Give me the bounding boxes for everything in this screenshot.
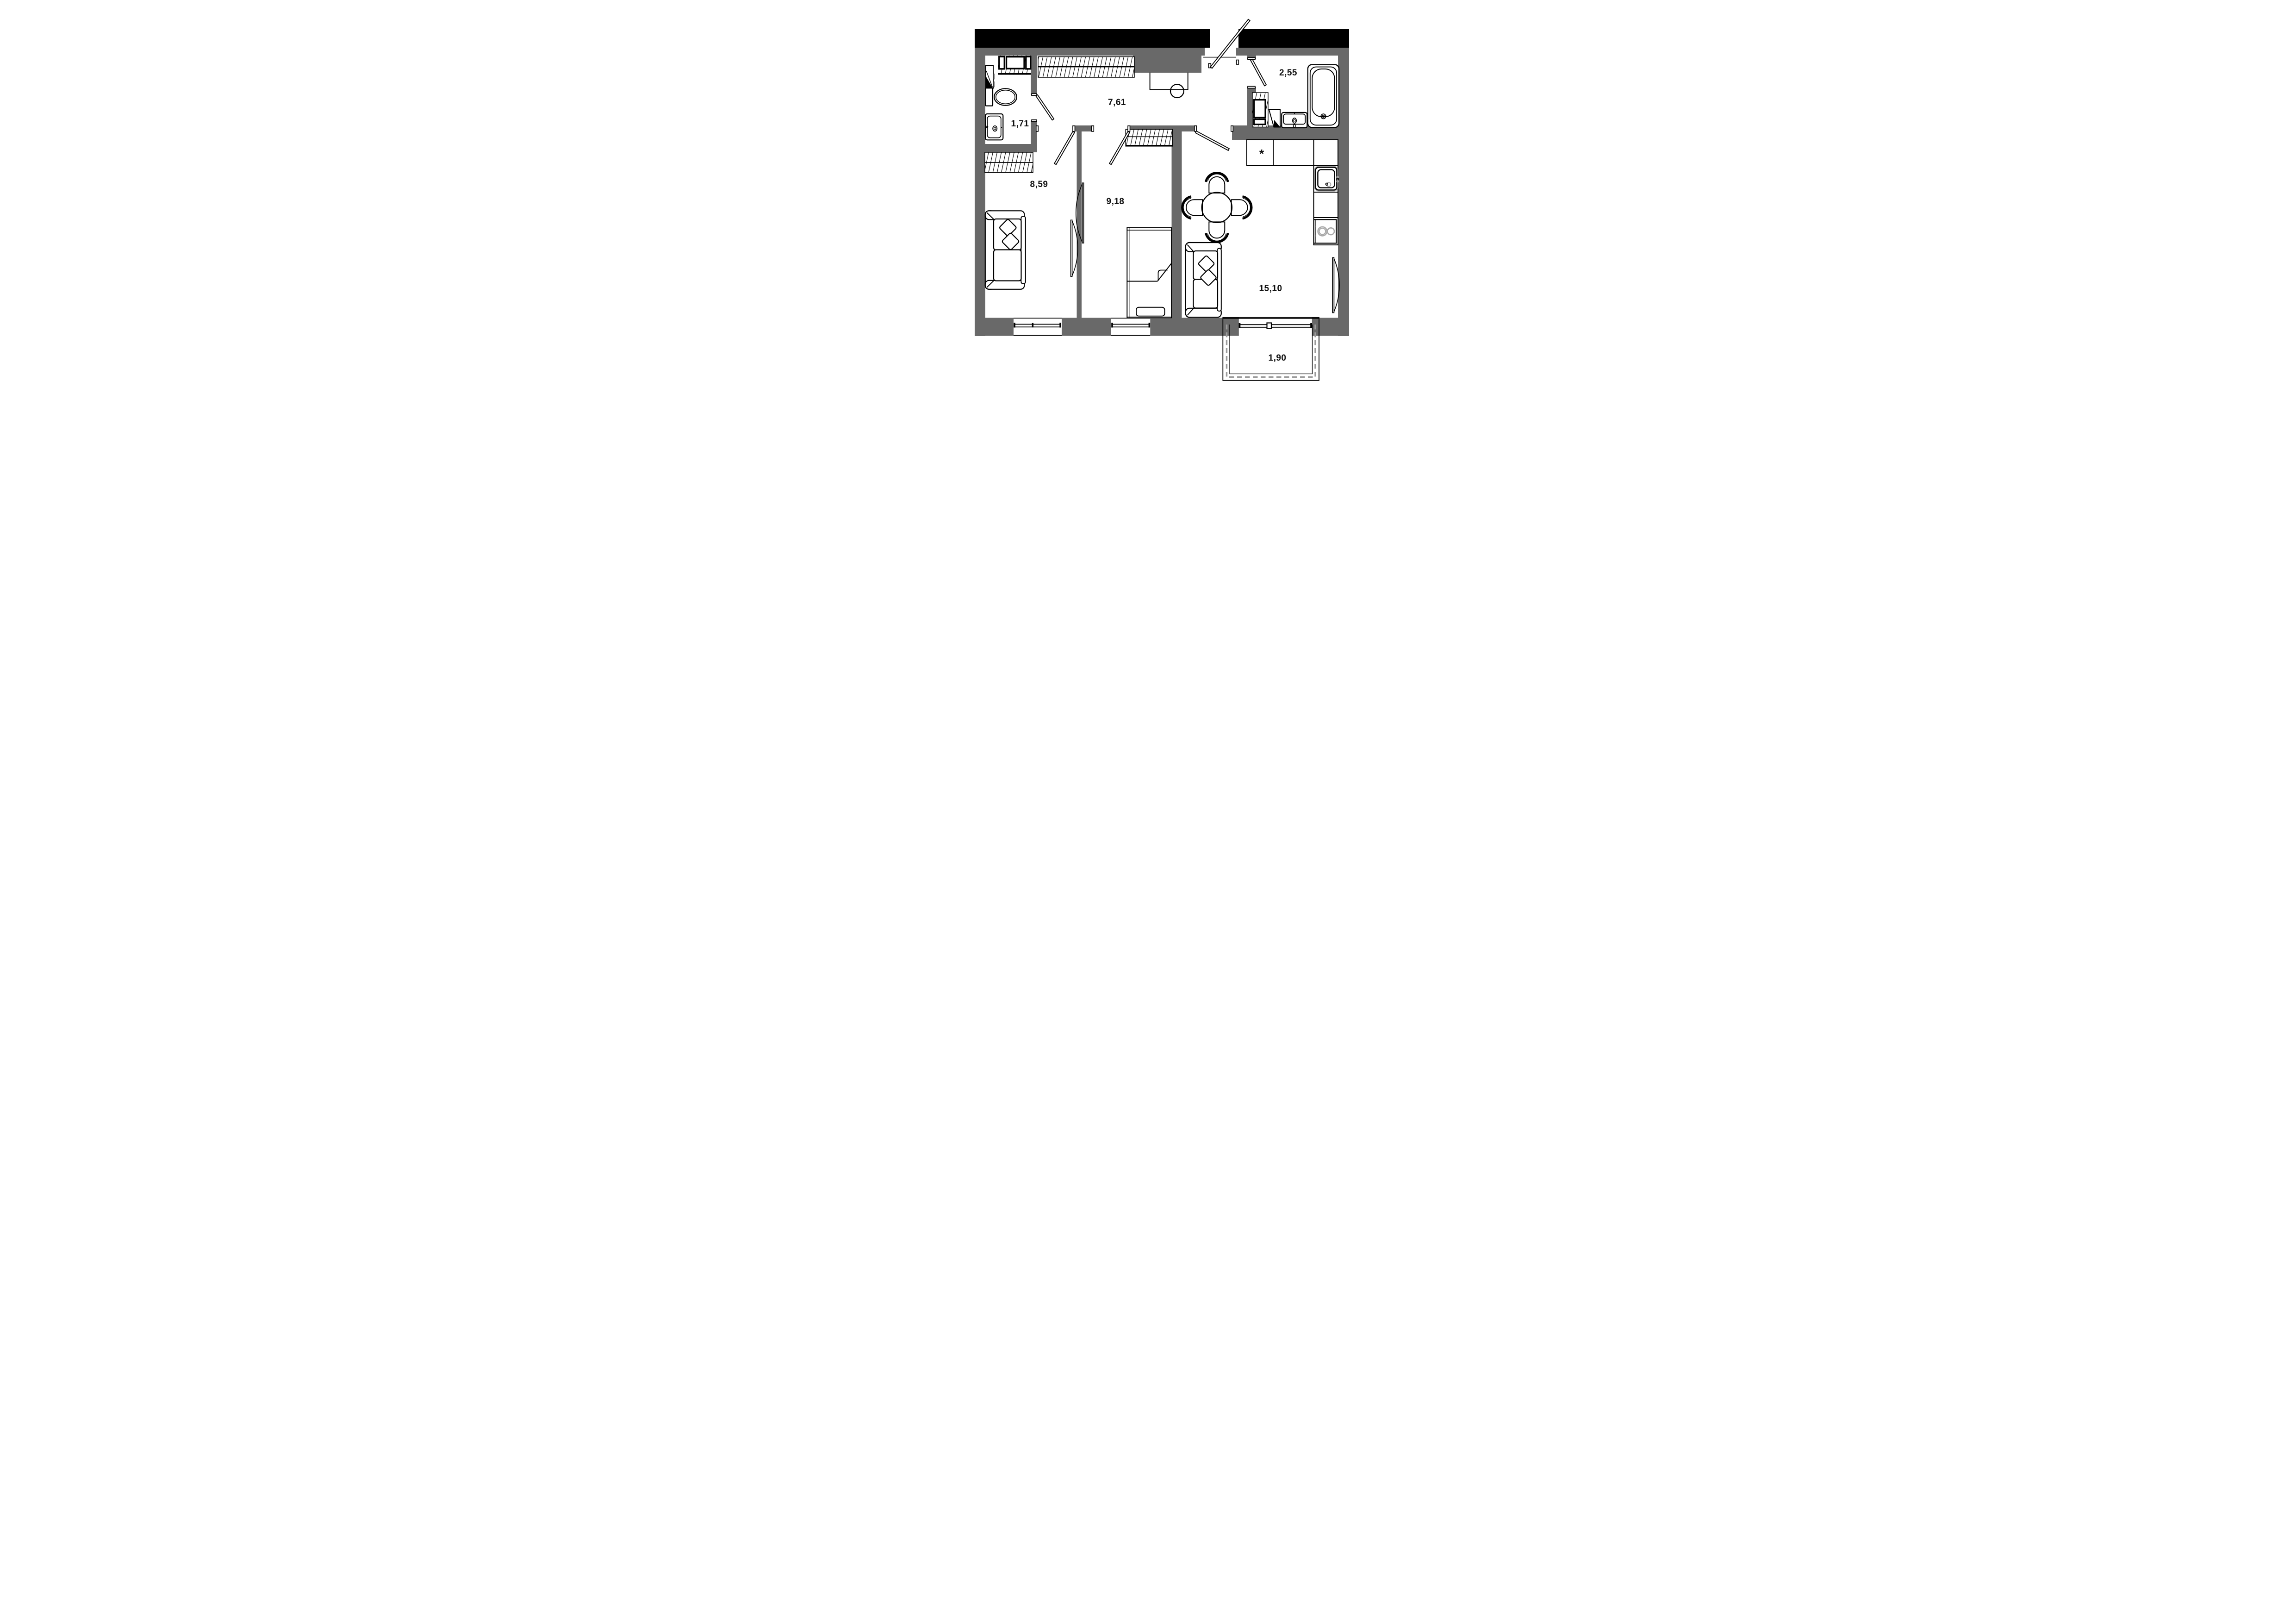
bathroom-door-leaf bbox=[1251, 59, 1266, 86]
floor-plan-page: 1,90 bbox=[861, 0, 1435, 406]
room-kitchen-living: * bbox=[1182, 126, 1339, 318]
room-middle: 9,18 bbox=[1076, 126, 1172, 318]
wc-towel-rail-mark-2 bbox=[993, 81, 994, 87]
wc-door-leaf bbox=[1036, 95, 1054, 120]
outer-black-wall bbox=[975, 29, 1349, 48]
kitchen-sink-icon bbox=[1315, 167, 1339, 191]
room-left-wardrobe bbox=[985, 152, 1033, 173]
bathroom-door bbox=[1248, 58, 1266, 88]
hallway-console-desk bbox=[1150, 73, 1188, 98]
room-left-door-leaf bbox=[1054, 131, 1075, 164]
window-room-left bbox=[1014, 318, 1062, 336]
kitchen-living-door-leaf bbox=[1195, 131, 1229, 150]
kitchen-living-door bbox=[1194, 126, 1233, 150]
bathroom-area-label: 2,55 bbox=[1279, 68, 1297, 78]
chair-right bbox=[1231, 196, 1251, 219]
bathtub-icon bbox=[1307, 65, 1338, 128]
stove-icon bbox=[1313, 219, 1336, 243]
balcony-glazing-dashes bbox=[1226, 325, 1315, 377]
bed-pillow bbox=[1136, 307, 1165, 316]
wc-door bbox=[1032, 94, 1054, 121]
balcony-area-label: 1,90 bbox=[1268, 353, 1286, 363]
dining-table-set bbox=[1182, 173, 1251, 242]
bathroom-washing-machine bbox=[1254, 100, 1265, 118]
room-left-sofa bbox=[985, 211, 1025, 289]
fridge-symbol: * bbox=[1259, 147, 1264, 161]
living-sofa bbox=[1185, 243, 1221, 317]
toilet-icon bbox=[985, 88, 1017, 106]
wc-water-heater bbox=[986, 65, 993, 88]
round-table bbox=[1201, 193, 1232, 223]
wc-cabinet bbox=[999, 56, 1004, 69]
chair-bottom bbox=[1206, 222, 1228, 242]
room-left-area-label: 8,59 bbox=[1030, 180, 1048, 189]
hallway-stool bbox=[1170, 84, 1184, 98]
bathroom-sink-icon bbox=[1282, 112, 1307, 128]
room-bathroom: 2,55 bbox=[1248, 58, 1339, 128]
bathroom-washer-column bbox=[1252, 93, 1268, 127]
kitchen-living-area-label: 15,10 bbox=[1259, 284, 1282, 294]
wc-washing-machine bbox=[1006, 57, 1024, 69]
wc-cabinet-2 bbox=[1026, 56, 1030, 69]
room-middle-wardrobe bbox=[1126, 129, 1172, 146]
bed-icon bbox=[1127, 228, 1171, 318]
window-room-middle bbox=[1111, 318, 1150, 336]
hallway-area-label: 7,61 bbox=[1108, 98, 1126, 107]
room-left-door bbox=[1036, 126, 1075, 165]
room-middle-area-label: 9,18 bbox=[1106, 197, 1124, 206]
chair-left bbox=[1182, 196, 1202, 219]
wc-sink-icon bbox=[985, 114, 1003, 140]
room-middle-door-leaf bbox=[1109, 131, 1130, 164]
hallway-wardrobe bbox=[1038, 57, 1134, 78]
bathroom-water-heater bbox=[1269, 110, 1280, 127]
floor-plan-drawing: 1,90 bbox=[861, 0, 1435, 406]
wc-area-label: 1,71 bbox=[1011, 119, 1029, 129]
room-middle-door bbox=[1091, 126, 1130, 165]
chair-top bbox=[1206, 173, 1228, 193]
wc-towel-rail-mark bbox=[993, 74, 994, 80]
